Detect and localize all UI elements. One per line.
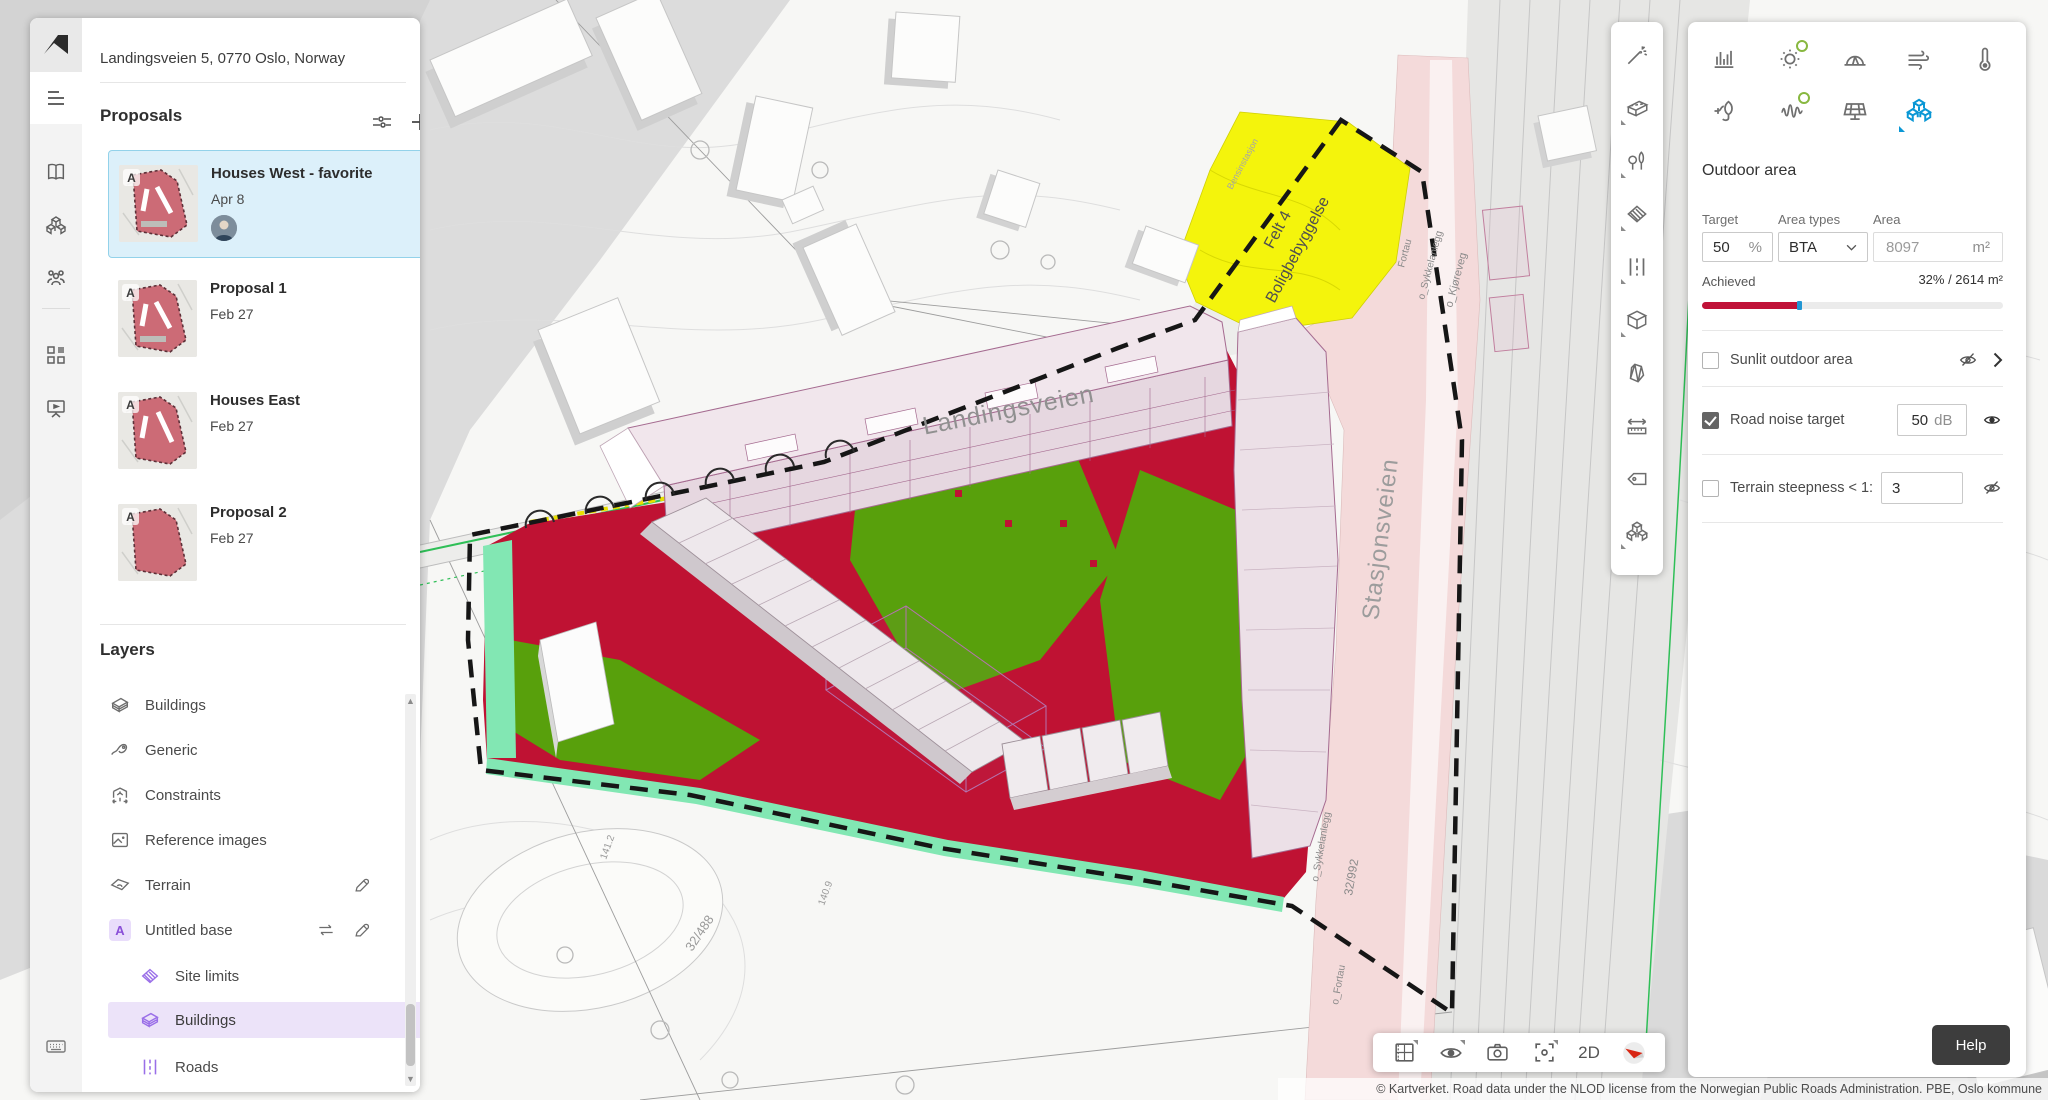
progress-fill: [1702, 302, 1798, 309]
filter-sliders-icon[interactable]: [370, 110, 394, 134]
terrain-icon: [109, 874, 131, 896]
layers-scrollbar[interactable]: ▲ ▼: [405, 694, 416, 1086]
layer-row-site-limits[interactable]: Site limits: [82, 958, 420, 994]
camera-icon[interactable]: [1485, 1040, 1511, 1066]
thermometer-icon[interactable]: [1963, 38, 2007, 80]
divider: [100, 82, 406, 83]
road-noise-checkbox[interactable]: [1702, 412, 1719, 429]
app-rail: [30, 18, 82, 1092]
proposals-title: Proposals: [100, 106, 182, 126]
proposal-title: Houses West - favorite: [211, 165, 372, 182]
proposal-card[interactable]: A Proposal 2 Feb 27: [108, 494, 420, 600]
solar-panel-icon[interactable]: [1833, 90, 1877, 132]
prism-tool[interactable]: [1615, 346, 1659, 399]
layer-row-reference-images[interactable]: Reference images: [82, 822, 420, 858]
layer-row-terrain[interactable]: Terrain: [82, 867, 420, 903]
edit-pencil-icon[interactable]: [352, 920, 372, 940]
area-label: Area: [1873, 212, 1900, 227]
eye-off-icon[interactable]: [1981, 477, 2003, 499]
proposal-title: Houses East: [210, 392, 300, 409]
target-input[interactable]: 50%: [1702, 232, 1773, 262]
proposal-thumbnail: A: [119, 165, 198, 242]
proposal-date: Feb 27: [210, 306, 287, 322]
buildings-3d-icon: [109, 694, 131, 716]
proposal-thumbnail: A: [118, 504, 197, 581]
layer-row-constraints[interactable]: Constraints: [82, 777, 420, 813]
terrain-steepness-row: Terrain steepness < 1: 3: [1702, 462, 2003, 514]
proposal-card[interactable]: A Houses West - favorite Apr 8: [108, 150, 420, 258]
label-tag-tool[interactable]: [1615, 452, 1659, 505]
layer-row-roads[interactable]: Roads: [82, 1049, 420, 1085]
swap-arrows-icon[interactable]: [316, 920, 336, 940]
proposal-badge: A: [126, 398, 135, 412]
chevron-down-icon: [1846, 244, 1857, 251]
analysis-panel: Outdoor area Target Area types Area 50% …: [1688, 22, 2026, 1077]
sun-analysis-icon[interactable]: [1768, 38, 1812, 80]
proposal-title: Proposal 1: [210, 280, 287, 297]
hatched-site-icon: [139, 965, 161, 987]
generic-scribble-icon: [109, 739, 131, 761]
divider: [1702, 454, 2003, 455]
divider: [1702, 522, 2003, 523]
achieved-progress-bar: [1702, 302, 2003, 309]
proposal-date: Feb 27: [210, 530, 287, 546]
area-cubes-icon[interactable]: [1897, 90, 1941, 132]
avatar: [211, 215, 237, 241]
scroll-down-arrow[interactable]: ▼: [405, 1074, 416, 1084]
achieved-label: Achieved: [1702, 274, 1755, 289]
layer-row-untitled-base[interactable]: A Untitled base: [82, 912, 420, 948]
layer-label: Reference images: [145, 832, 267, 849]
sunlit-outdoor-area-row: Sunlit outdoor area: [1702, 334, 2003, 386]
tool-rail: [1611, 22, 1663, 575]
eye-icon[interactable]: [1981, 409, 2003, 431]
focus-frame-icon[interactable]: [1531, 1040, 1557, 1066]
layer-label: Roads: [175, 1059, 218, 1076]
layer-label: Constraints: [145, 787, 221, 804]
zone-tool[interactable]: [1615, 187, 1659, 240]
layer-row-buildings-sub[interactable]: Buildings: [108, 1002, 420, 1038]
view-toolbar: 2D: [1373, 1033, 1665, 1072]
map-attribution: © Kartverket. Road data under the NLOD l…: [1278, 1078, 2048, 1100]
proposal-badge: A: [126, 510, 135, 524]
magic-wand-tool[interactable]: [1615, 28, 1659, 81]
edit-pencil-icon[interactable]: [352, 875, 372, 895]
help-button[interactable]: Help: [1932, 1025, 2010, 1065]
vegetation-tool[interactable]: [1615, 134, 1659, 187]
layer-label: Site limits: [175, 968, 239, 985]
divider: [1702, 330, 2003, 331]
layers-title: Layers: [100, 640, 155, 660]
wind-analysis-icon[interactable]: [1897, 38, 1941, 80]
view-mode-2d-button[interactable]: 2D: [1578, 1043, 1600, 1063]
row-label: Sunlit outdoor area: [1730, 352, 1853, 368]
compass-north-icon[interactable]: [1621, 1040, 1647, 1066]
target-label: Target: [1702, 212, 1738, 227]
proposal-card[interactable]: A Houses East Feb 27: [108, 382, 420, 488]
area-types-select[interactable]: BTA: [1778, 232, 1868, 262]
proposal-title: Proposal 2: [210, 504, 287, 521]
scroll-up-arrow[interactable]: ▲: [405, 696, 416, 706]
row-label: Terrain steepness < 1:: [1730, 480, 1873, 496]
daylight-dome-icon[interactable]: [1833, 38, 1877, 80]
proposal-date: Feb 27: [210, 418, 300, 434]
steepness-input[interactable]: 3: [1881, 472, 1963, 504]
proposal-card[interactable]: A Proposal 1 Feb 27: [108, 270, 420, 376]
divider: [1702, 386, 2003, 387]
row-label: Road noise target: [1730, 412, 1844, 428]
noise-analysis-icon[interactable]: [1770, 90, 1814, 132]
statistics-bars-icon[interactable]: [1702, 38, 1746, 80]
proposal-date: Apr 8: [211, 191, 372, 207]
add-proposal-icon[interactable]: [408, 110, 420, 134]
rail-presentation-icon[interactable]: [30, 382, 82, 434]
project-address: Landingsveien 5, 0770 Oslo, Norway: [100, 50, 345, 67]
panel-title: Outdoor area: [1702, 162, 1796, 180]
chevron-right-icon[interactable]: [1993, 352, 2003, 368]
energy-plug-leaf-icon[interactable]: [1703, 90, 1747, 132]
progress-marker: [1797, 301, 1802, 310]
sunlit-checkbox[interactable]: [1702, 352, 1719, 369]
layer-label: Terrain: [145, 877, 191, 894]
building-tool[interactable]: [1615, 81, 1659, 134]
eye-off-icon[interactable]: [1957, 349, 1979, 371]
road-tool[interactable]: [1615, 240, 1659, 293]
layer-label: Generic: [145, 742, 198, 759]
area-input: 8097m²: [1873, 232, 2003, 262]
area-types-label: Area types: [1778, 212, 1840, 227]
scrollbar-thumb[interactable]: [406, 1004, 415, 1066]
left-panel: Landingsveien 5, 0770 Oslo, Norway Propo…: [30, 18, 420, 1092]
rail-people-icon[interactable]: [30, 252, 82, 304]
layer-label: Buildings: [145, 697, 206, 714]
road-dashes-icon: [139, 1056, 161, 1078]
achieved-value: 32% / 2614 m²: [1918, 272, 2003, 287]
noise-db-input[interactable]: 50dB: [1897, 404, 1967, 436]
base-badge: A: [109, 919, 131, 941]
proposal-thumbnail: A: [118, 280, 197, 357]
blocks-tool[interactable]: [1615, 505, 1659, 558]
layer-label: Buildings: [175, 1012, 236, 1029]
proposal-badge: A: [127, 171, 136, 185]
visibility-eye-icon[interactable]: [1438, 1040, 1464, 1066]
rail-menu-button[interactable]: [30, 72, 82, 124]
rail-divider: [42, 308, 70, 309]
divider: [100, 624, 406, 625]
autodesk-logo[interactable]: [30, 18, 82, 72]
constraints-box-icon: [109, 784, 131, 806]
layer-row-buildings[interactable]: Buildings: [82, 687, 420, 723]
road-noise-target-row: Road noise target 50dB: [1702, 394, 2003, 446]
rail-library-icon[interactable]: [30, 146, 82, 198]
image-icon: [109, 829, 131, 851]
steepness-checkbox[interactable]: [1702, 480, 1719, 497]
proposal-badge: A: [126, 286, 135, 300]
plan-grid-icon[interactable]: [1391, 1040, 1417, 1066]
rail-blocks-icon[interactable]: [30, 200, 82, 252]
volume-box-tool[interactable]: [1615, 293, 1659, 346]
layer-label: Untitled base: [145, 922, 233, 939]
keyboard-shortcuts-icon[interactable]: [30, 1020, 82, 1072]
measure-tool[interactable]: [1615, 399, 1659, 452]
buildings-3d-icon: [139, 1009, 161, 1031]
layer-row-generic[interactable]: Generic: [82, 732, 420, 768]
rail-apps-icon[interactable]: [30, 329, 82, 381]
proposal-thumbnail: A: [118, 392, 197, 469]
